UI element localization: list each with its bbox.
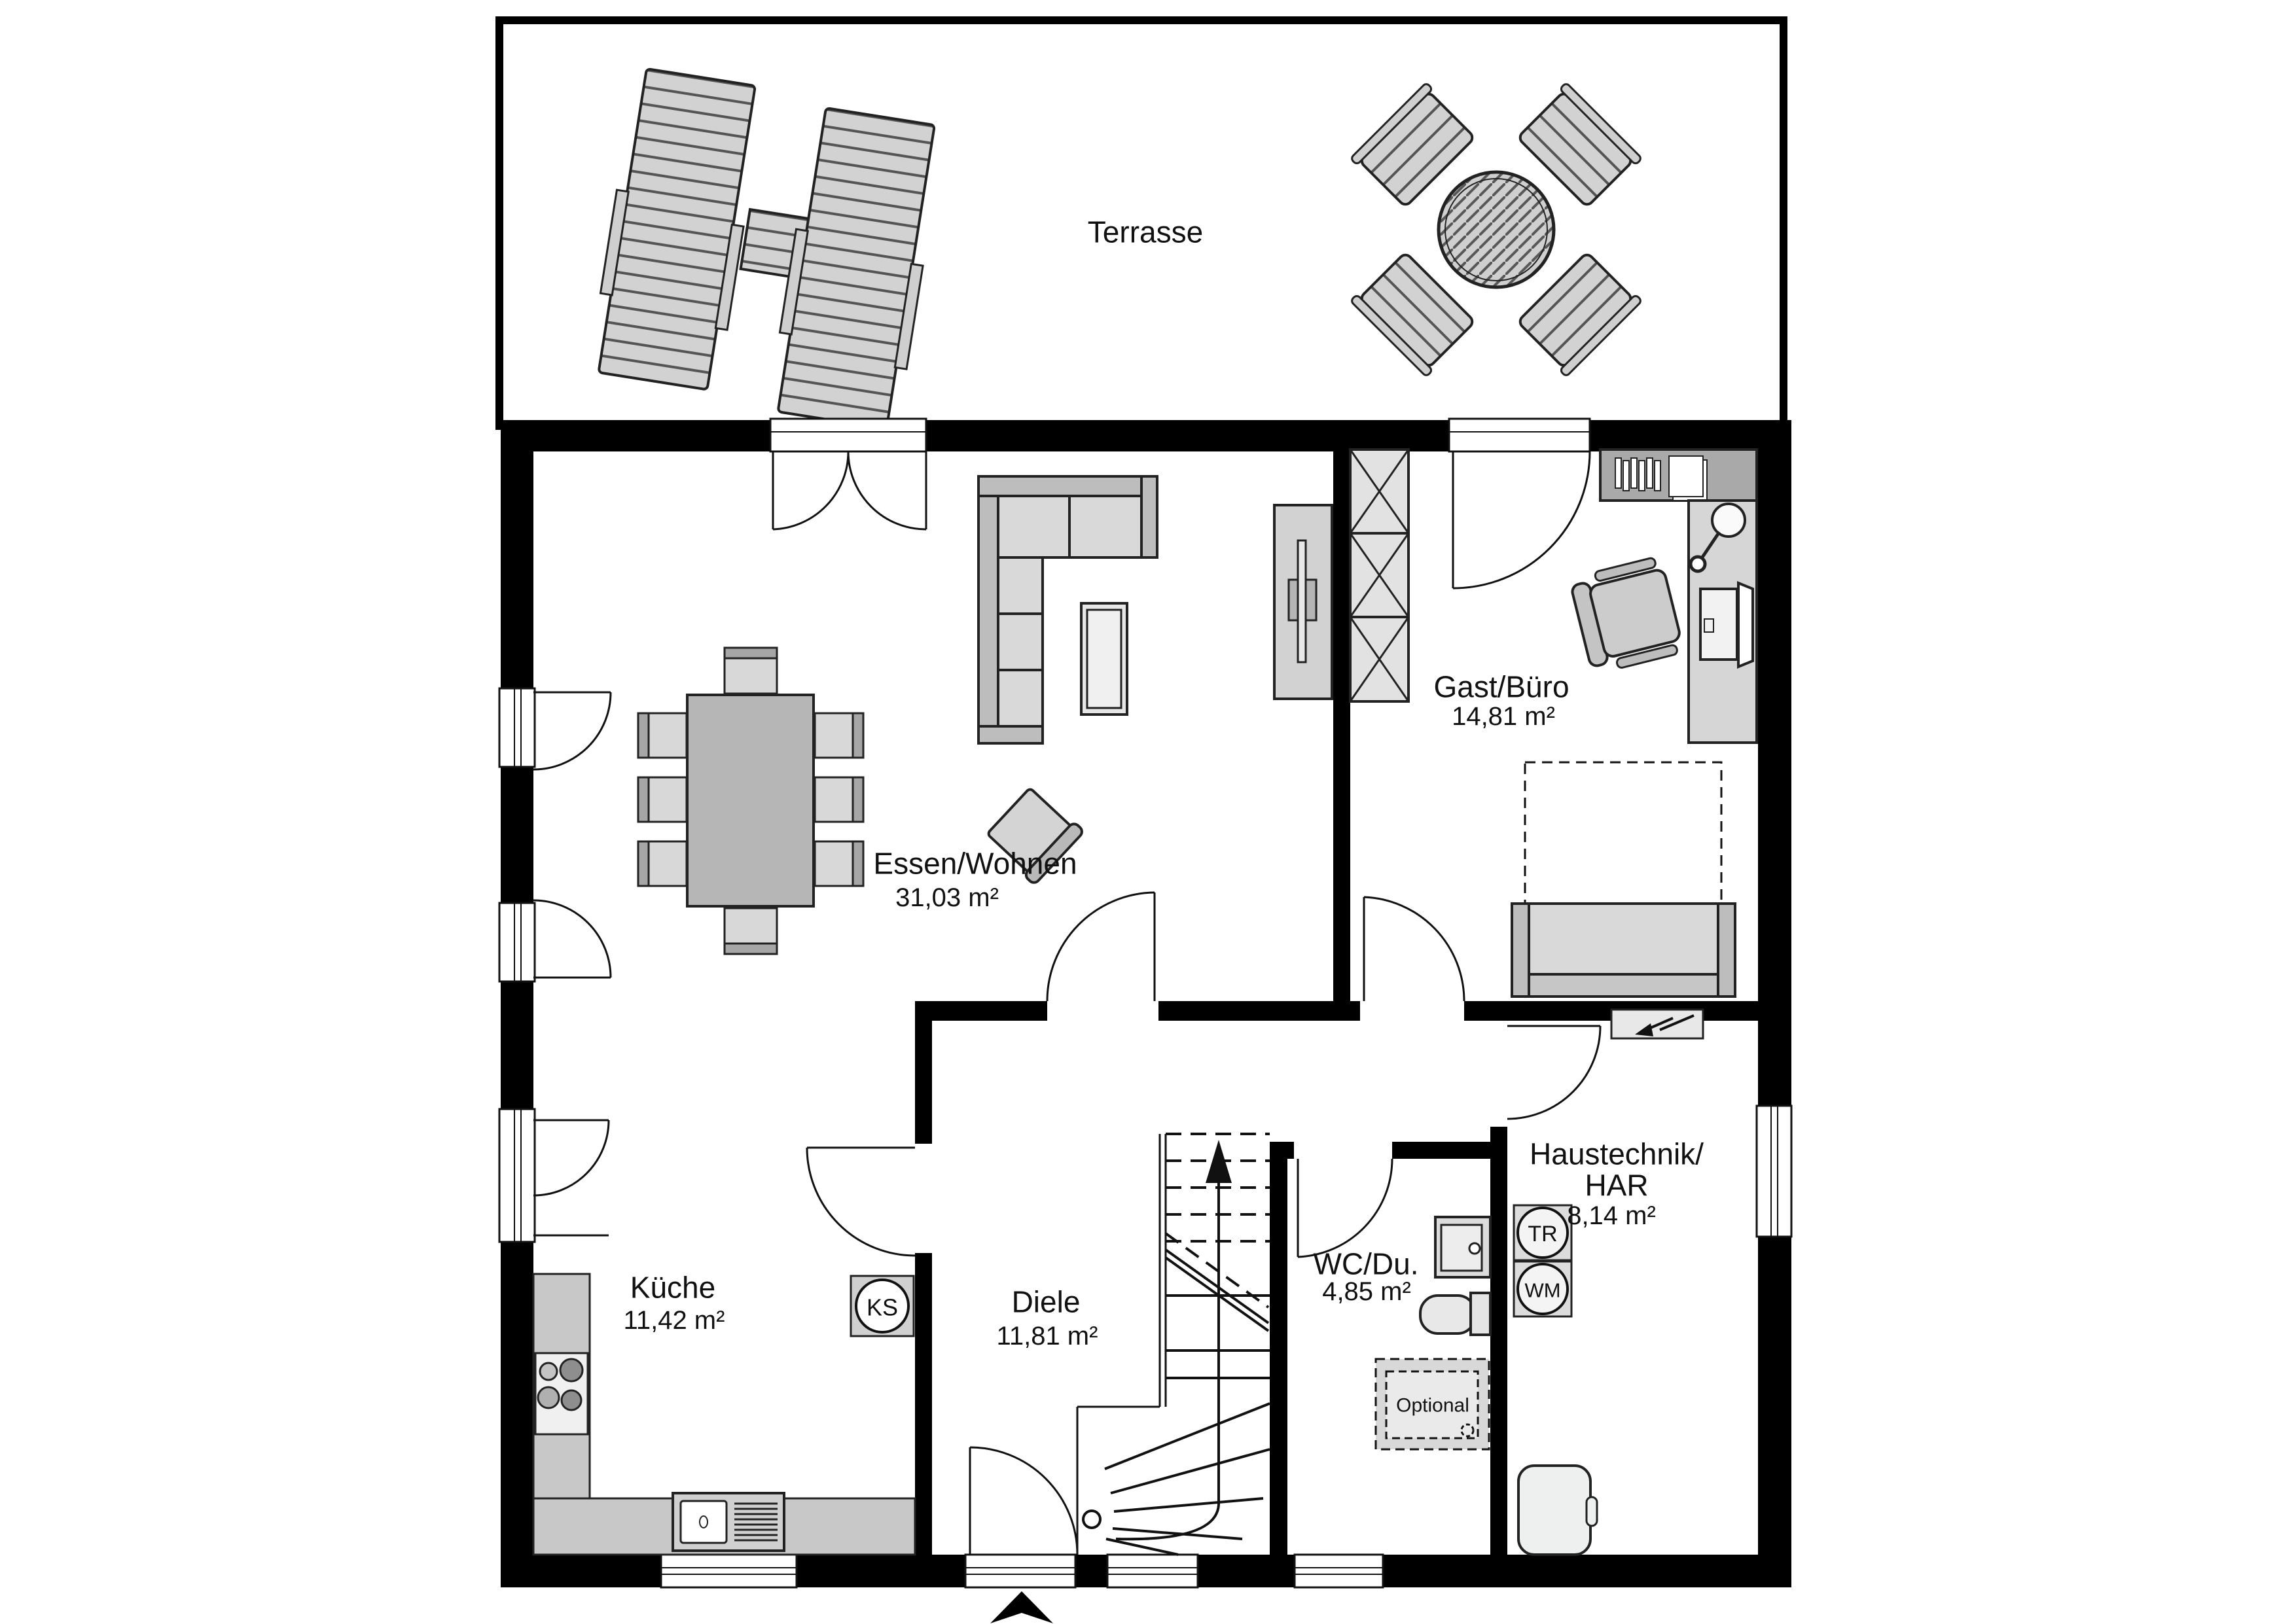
wall-left (501, 420, 533, 1587)
tv-icon (1298, 540, 1306, 662)
wardrobe-icon (1350, 450, 1408, 701)
washer-label: WM (1524, 1279, 1560, 1302)
room-label-utility-line2: HAR (1585, 1169, 1648, 1203)
room-area-living: 31,03 m² (895, 883, 999, 913)
sink-icon (673, 1493, 784, 1551)
optional-shower: Optional (1376, 1359, 1489, 1449)
terrace-label-text: Terrasse (1088, 215, 1203, 249)
room-area-kitchen: 11,42 m² (624, 1305, 725, 1335)
dining-table-icon (687, 695, 814, 906)
chair-icon (815, 713, 863, 758)
bottom-window-hall (1107, 1555, 1198, 1587)
utility-window (1757, 1106, 1791, 1237)
optional-label: Optional (1396, 1395, 1469, 1417)
room-area-hall: 11,81 m² (997, 1321, 1098, 1351)
floor-plan-page: KS (0, 0, 2296, 1624)
dryer-icon: TR (1514, 1205, 1571, 1260)
laptop-icon (1700, 583, 1753, 667)
room-label-hall: Diele (1012, 1285, 1081, 1320)
washer-icon: WM (1514, 1262, 1571, 1316)
chair-icon (638, 713, 687, 758)
fridge-icon: KS (851, 1276, 914, 1336)
chair-icon (815, 777, 863, 822)
room-area-utility: 8,14 m² (1567, 1201, 1656, 1231)
chair-icon (725, 908, 777, 954)
entrance-arrow-icon (990, 1591, 1053, 1623)
bottom-window-kitchen (661, 1555, 797, 1587)
chair-icon (638, 777, 687, 822)
tv-sideboard-icon (1274, 505, 1332, 699)
fridge-label: KS (867, 1294, 898, 1321)
room-label-guest: Gast/Büro (1433, 670, 1569, 705)
room-label-kitchen: Küche (630, 1271, 715, 1305)
round-table-icon (1439, 172, 1554, 287)
toilet-icon (1420, 1293, 1490, 1335)
dryer-label: TR (1528, 1222, 1557, 1246)
boiler-icon (1518, 1466, 1597, 1555)
chair-icon (815, 841, 863, 886)
chair-icon (725, 648, 777, 694)
stair-newel-post (1083, 1511, 1100, 1528)
chair-icon (638, 841, 687, 886)
room-label-utility-line1: Haustechnik/ (1530, 1137, 1704, 1172)
room-area-guest: 14,81 m² (1452, 701, 1555, 732)
coffee-table-icon (1081, 603, 1127, 715)
wall-top (501, 420, 1791, 451)
meter-cabinet-icon (1611, 1010, 1703, 1038)
room-label-living: Essen/Wohnen (873, 847, 1077, 881)
cooktop-icon (535, 1353, 588, 1434)
room-area-wc: 4,85 m² (1322, 1277, 1411, 1307)
guest-bed-icon (1512, 762, 1735, 997)
shower-icon (1435, 1217, 1490, 1277)
terrace-label: Terrasse (1088, 215, 1203, 250)
paper-icon (1669, 456, 1703, 497)
bottom-window-wc (1295, 1555, 1383, 1587)
